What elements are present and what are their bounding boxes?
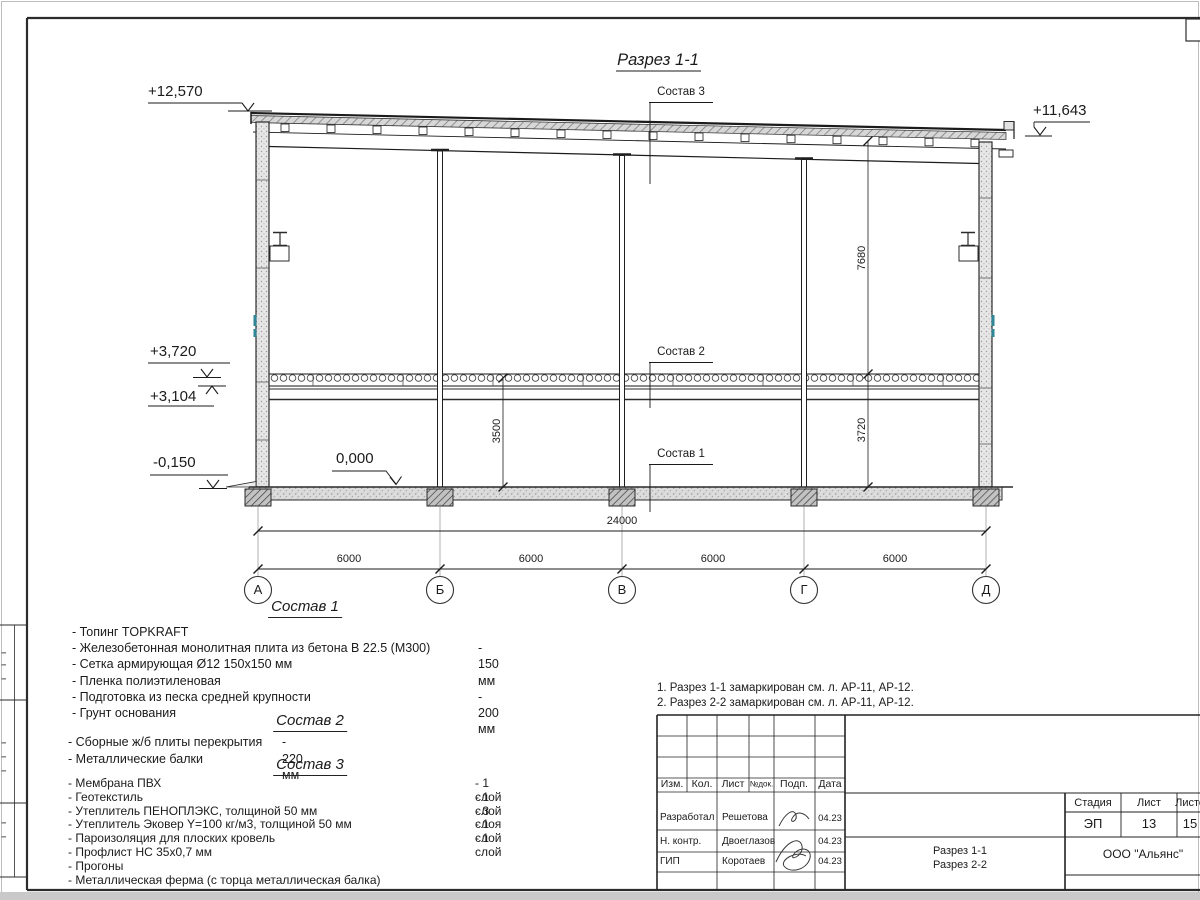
list-item: - Сборные ж/б плиты перекрытия- 220 мм	[68, 734, 262, 751]
list-item: - Утеплитель ПЕНОПЛЭКС, толщиной 50 мм- …	[68, 805, 381, 819]
dim-3720: 3720	[856, 418, 868, 442]
list-item: - Железобетонная монолитная плита из бет…	[72, 640, 430, 656]
parapet-cap	[1004, 122, 1014, 131]
tb-header-ndoc: №док.	[750, 781, 773, 790]
tb-docname-line2: Разрез 2-2	[933, 859, 987, 871]
wall-panel-mark	[254, 315, 257, 326]
axis-b: Б	[436, 583, 445, 597]
sheet-bottom-shadow	[0, 892, 1200, 900]
list-item: - Геотекстиль- 1 слой	[68, 791, 381, 805]
list-item: - Пароизоляция для плоских кровель- 1 сл…	[68, 832, 381, 846]
upper-floor-slab	[259, 374, 980, 400]
tb-header-izm: Изм.	[661, 779, 684, 791]
corner-box	[1186, 19, 1200, 41]
tb-role-developer: Разработал	[660, 812, 714, 823]
tb-docname-line1: Разрез 1-1	[933, 845, 987, 857]
dim-total: 24000	[607, 515, 638, 527]
elevation-roof-right: +11,643	[1033, 103, 1087, 120]
list-item: - Профлист НС 35х0,7 мм	[68, 846, 381, 860]
roof	[251, 112, 1014, 164]
tb-header-kol: Кол.	[692, 779, 713, 791]
tb-role-ncontrol: Н. контр.	[660, 836, 701, 847]
elevation-roof-left: +12,570	[148, 84, 203, 101]
wall-right	[959, 142, 995, 487]
composition2-title: Состав 2	[273, 713, 347, 732]
apron	[226, 482, 256, 488]
elevation-ground: -0,150	[153, 455, 196, 472]
list-item: - Металлическая ферма (с торца металличе…	[68, 874, 381, 888]
tb-name-developer: Решетова	[722, 812, 768, 823]
zero-level-leader	[332, 471, 396, 484]
composition1-title: Состав 1	[268, 599, 342, 618]
dim-7680: 7680	[856, 246, 868, 270]
composition2-list: - Сборные ж/б плиты перекрытия- 220 мм -…	[68, 734, 262, 767]
tb-date-developer: 04.23	[818, 814, 842, 824]
wall-panel-mark	[992, 315, 995, 326]
composition1-list: - Топинг TOPKRAFT - Железобетонная монол…	[72, 624, 430, 721]
sostav1-callout: Состав 1	[657, 448, 705, 461]
tb-sheet-header: Лист	[1137, 796, 1161, 808]
tb-header-podp: Подп.	[780, 779, 808, 791]
list-item: - Топинг TOPKRAFT	[72, 624, 430, 640]
note-2: 2. Разрез 2-2 замаркирован см. л. АР-11,…	[657, 696, 914, 711]
dim-bay-1: 6000	[337, 553, 361, 565]
tb-sheet-value: 13	[1142, 817, 1156, 831]
list-item: - Грунт основания	[72, 705, 430, 721]
tb-header-list: Лист	[722, 779, 745, 791]
axis-d: Д	[982, 583, 991, 597]
tb-stage-header: Стадия	[1074, 796, 1112, 808]
list-item: - Металлические балки	[68, 751, 262, 768]
list-item: - Прогоны	[68, 860, 381, 874]
tb-date-ncontrol: 04.23	[818, 837, 842, 847]
tb-company: ООО "Альянс"	[1103, 848, 1183, 861]
list-item: - Мембрана ПВХ- 1 слой	[68, 777, 381, 791]
elevation-slab-bottom: +3,104	[150, 389, 196, 406]
notes: 1. Разрез 1-1 замаркирован см. л. АР-11,…	[657, 681, 914, 710]
tb-header-data: Дата	[818, 779, 841, 791]
tb-sheets-header: Листов	[1175, 796, 1200, 808]
interior-columns	[431, 150, 813, 487]
signature-reshetova	[779, 812, 809, 826]
sostav2-callout: Состав 2	[657, 346, 705, 359]
sostav3-callout: Состав 3	[657, 86, 705, 99]
list-item: - Пленка полиэтиленовая	[72, 673, 430, 689]
tb-name-ncontrol: Двоеглазов	[722, 836, 775, 847]
dim-bay-4: 6000	[883, 553, 907, 565]
list-item: - Сетка армирующая Ø12 150х150 мм	[72, 656, 430, 672]
axis-g: Г	[800, 583, 807, 597]
zero-level-label: 0,000	[336, 451, 374, 468]
dim-bay-3: 6000	[701, 553, 725, 565]
dim-3500: 3500	[491, 419, 503, 443]
list-item: - Утеплитель Эковер Y=100 кг/м3, толщино…	[68, 818, 381, 832]
tb-sheets-value: 15	[1183, 817, 1197, 831]
drawing-title: Разрез 1-1	[617, 51, 699, 69]
wall-left	[254, 122, 290, 487]
composition3-list: - Мембрана ПВХ- 1 слой - Геотекстиль- 1 …	[68, 777, 381, 887]
tb-name-gip: Коротаев	[722, 856, 765, 867]
bracket-right	[959, 246, 978, 261]
axis-v: В	[618, 583, 627, 597]
tb-date-gip: 04.23	[818, 857, 842, 867]
signature-approvers	[776, 841, 810, 870]
tb-role-gip: ГИП	[660, 856, 680, 867]
composition3-title: Состав 3	[273, 757, 347, 776]
drawing-sheet: { "page": { "title": "Разрез 1-1" }, "dr…	[0, 0, 1200, 900]
tb-stage-value: ЭП	[1084, 817, 1103, 831]
axis-a: А	[254, 583, 263, 597]
bracket-left	[270, 246, 289, 261]
list-item: - Подготовка из песка средней крупности-…	[72, 689, 430, 705]
note-1: 1. Разрез 1-1 замаркирован см. л. АР-11,…	[657, 681, 914, 696]
dim-bay-2: 6000	[519, 553, 543, 565]
elevation-slab-top: +3,720	[150, 344, 196, 361]
